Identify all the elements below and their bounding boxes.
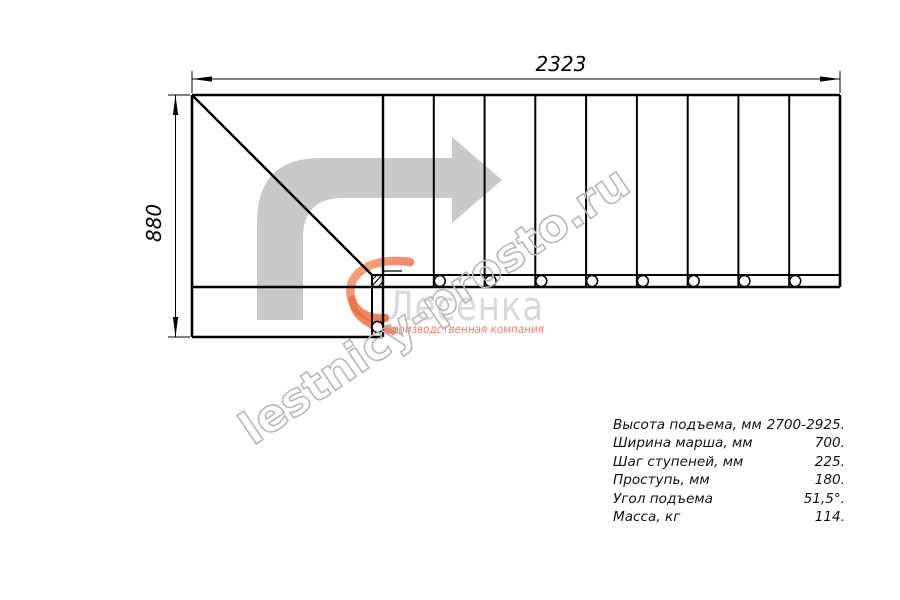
dimension-horizontal: 2323 bbox=[192, 52, 840, 93]
dimension-horizontal-lines bbox=[192, 71, 840, 93]
baluster-circle bbox=[637, 276, 648, 287]
staircase-drawing-canvas: Лесенка Производственная компания bbox=[0, 0, 900, 600]
baluster-circle bbox=[536, 276, 547, 287]
spec-label: Масса, кг bbox=[613, 508, 680, 526]
dimension-vertical-value: 880 bbox=[142, 204, 166, 242]
corner-post-hatch bbox=[372, 275, 383, 287]
spec-label: Угол подъема bbox=[613, 490, 713, 508]
spec-row-tread: Проступь, мм 180. bbox=[613, 471, 845, 489]
specs-table: Высота подъема, мм 2700-2925. Ширина мар… bbox=[613, 416, 845, 526]
baluster-circle bbox=[790, 276, 801, 287]
spec-value: 225. bbox=[815, 453, 845, 471]
spec-value: 180. bbox=[815, 471, 845, 489]
spec-value: 700. bbox=[815, 434, 845, 452]
spec-row-mass: Масса, кг 114. bbox=[613, 508, 845, 526]
spec-value: 51,5°. bbox=[804, 490, 845, 508]
spec-value: 114. bbox=[815, 508, 845, 526]
baluster-circle bbox=[688, 276, 699, 287]
spec-row-angle: Угол подъема 51,5°. bbox=[613, 490, 845, 508]
spec-label: Проступь, мм bbox=[613, 471, 710, 489]
spec-row-flight-width: Ширина марша, мм 700. bbox=[613, 434, 845, 452]
dimension-horizontal-value: 2323 bbox=[536, 52, 587, 76]
baluster-circle bbox=[587, 276, 598, 287]
dimension-vertical-lines bbox=[168, 95, 190, 337]
spec-label: Шаг ступеней, мм bbox=[613, 453, 743, 471]
spec-row-step-pitch: Шаг ступеней, мм 225. bbox=[613, 453, 845, 471]
spec-label: Высота подъема, мм bbox=[613, 416, 762, 434]
dimension-vertical: 880 bbox=[142, 95, 190, 337]
spec-value: 2700-2925. bbox=[767, 416, 845, 434]
baluster-circle bbox=[739, 276, 750, 287]
spec-label: Ширина марша, мм bbox=[613, 434, 753, 452]
spec-row-height: Высота подъема, мм 2700-2925. bbox=[613, 416, 845, 434]
